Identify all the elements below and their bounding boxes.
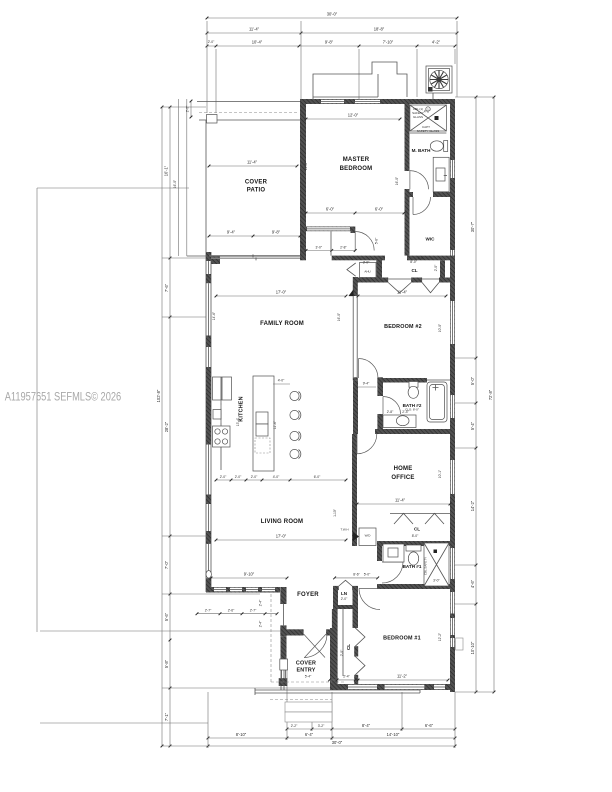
svg-text:2'-0": 2'-0": [251, 475, 258, 479]
svg-text:8'-0": 8'-0": [412, 534, 419, 538]
svg-text:A11957651 SEFMLS© 2026: A11957651 SEFMLS© 2026: [5, 390, 122, 404]
svg-text:8'-0": 8'-0": [410, 260, 417, 264]
svg-text:BEDROOM #1: BEDROOM #1: [383, 636, 421, 642]
svg-text:8'-10": 8'-10": [236, 732, 247, 737]
svg-text:7'-10": 7'-10": [383, 40, 394, 45]
svg-text:ENTRY: ENTRY: [296, 668, 315, 674]
svg-text:AHU: AHU: [364, 270, 370, 274]
svg-text:9'-8": 9'-8": [272, 230, 281, 235]
svg-text:5'-4": 5'-4": [305, 675, 312, 679]
svg-text:5'-6": 5'-6": [164, 612, 169, 621]
svg-text:4'-6": 4'-6": [470, 579, 475, 588]
svg-text:4'-0": 4'-0": [273, 475, 280, 479]
svg-text:72'-8": 72'-8": [488, 389, 493, 400]
svg-text:CL: CL: [346, 644, 351, 650]
svg-text:17'-0": 17'-0": [276, 534, 287, 539]
svg-text:7'-0": 7'-0": [164, 560, 169, 569]
svg-text:2'-0": 2'-0": [208, 40, 215, 44]
svg-text:5'-8": 5'-8": [164, 659, 169, 668]
svg-text:KITCHEN: KITCHEN: [239, 396, 245, 421]
svg-text:OFFICE: OFFICE: [391, 475, 414, 481]
svg-text:2'-7": 2'-7": [205, 609, 212, 613]
svg-text:11'-6": 11'-6": [273, 420, 277, 429]
svg-text:9'-10": 9'-10": [244, 572, 255, 577]
svg-text:SAFETY GLASS: SAFETY GLASS: [417, 129, 439, 133]
svg-text:16'-0": 16'-0": [395, 176, 399, 185]
svg-text:3'-0": 3'-0": [316, 246, 323, 250]
svg-text:LN: LN: [341, 591, 348, 596]
svg-text:7'-6": 7'-6": [164, 283, 169, 292]
svg-text:6'-0": 6'-0": [326, 207, 335, 212]
svg-text:6'-0": 6'-0": [418, 256, 425, 260]
svg-text:14'-6": 14'-6": [212, 311, 216, 320]
svg-text:8'-6": 8'-6": [353, 573, 360, 577]
svg-text:6'-0": 6'-0": [314, 475, 321, 479]
svg-text:11'-4": 11'-4": [395, 498, 406, 503]
svg-text:102'-8": 102'-8": [156, 389, 161, 402]
svg-text:10'-1": 10'-1": [438, 469, 442, 478]
svg-text:FAMILY ROOM: FAMILY ROOM: [260, 321, 304, 327]
svg-text:BATH #1: BATH #1: [403, 564, 422, 569]
svg-text:2'-0": 2'-0": [340, 649, 344, 656]
svg-text:2'-0": 2'-0": [341, 597, 348, 601]
svg-text:PATIO: PATIO: [247, 188, 266, 194]
svg-text:11'-4": 11'-4": [249, 27, 260, 32]
svg-text:BEDROOM: BEDROOM: [340, 166, 373, 172]
svg-text:FOYER: FOYER: [297, 592, 319, 598]
svg-text:6'-0": 6'-0": [375, 207, 384, 212]
svg-text:2'-0": 2'-0": [301, 240, 305, 247]
svg-text:11'-4": 11'-4": [247, 160, 258, 165]
svg-text:14'-6": 14'-6": [304, 161, 308, 170]
svg-text:9'-4": 9'-4": [363, 382, 370, 386]
svg-text:2'-6": 2'-6": [228, 609, 235, 613]
svg-text:2'-4": 2'-4": [259, 620, 263, 627]
svg-text:GLASS: GLASS: [413, 115, 423, 119]
svg-text:10'-4": 10'-4": [252, 40, 263, 45]
svg-text:12'-2": 12'-2": [438, 632, 442, 641]
svg-text:5'-4": 5'-4": [470, 421, 475, 430]
svg-text:11'-2": 11'-2": [397, 674, 408, 679]
svg-text:7'-1": 7'-1": [164, 712, 169, 721]
svg-text:18'-8": 18'-8": [374, 27, 385, 32]
svg-text:6'-4": 6'-4": [305, 732, 314, 737]
svg-text:10'-10": 10'-10": [470, 641, 475, 654]
svg-text:2'-2": 2'-2": [291, 724, 298, 728]
svg-text:W/D: W/D: [365, 534, 372, 538]
svg-text:3'-0": 3'-0": [433, 579, 440, 583]
svg-text:WIC: WIC: [426, 237, 436, 242]
svg-text:CLG: 8'-0": CLG: 8'-0": [405, 407, 419, 411]
svg-text:M. BATH: M. BATH: [412, 148, 431, 153]
svg-text:28'-2": 28'-2": [164, 421, 169, 432]
svg-text:2'-0": 2'-0": [186, 105, 190, 112]
svg-text:CL: CL: [411, 268, 417, 273]
svg-text:2'-4": 2'-4": [259, 599, 263, 606]
svg-text:16'-0": 16'-0": [337, 312, 341, 321]
svg-text:2'-0": 2'-0": [220, 475, 227, 479]
svg-text:30'-0": 30'-0": [332, 740, 343, 745]
svg-text:16'-0": 16'-0": [173, 179, 177, 188]
svg-text:4'-2": 4'-2": [432, 40, 441, 45]
svg-text:2'-0": 2'-0": [434, 264, 438, 271]
svg-text:5'-0": 5'-0": [470, 376, 475, 385]
svg-text:CBL SAFETY: CBL SAFETY: [424, 557, 428, 575]
svg-text:3'-2": 3'-2": [318, 724, 325, 728]
svg-text:9'-8": 9'-8": [325, 40, 334, 45]
svg-text:11'-4": 11'-4": [397, 290, 408, 295]
svg-text:30'-0": 30'-0": [327, 12, 338, 17]
svg-text:CL: CL: [414, 527, 420, 532]
svg-text:3'-0": 3'-0": [363, 261, 370, 265]
svg-text:MASTER: MASTER: [343, 157, 370, 163]
svg-text:LIVING ROOM: LIVING ROOM: [261, 519, 304, 525]
svg-text:12'-0": 12'-0": [348, 113, 359, 118]
svg-text:5'-8": 5'-8": [375, 237, 379, 244]
svg-text:6'-6": 6'-6": [425, 723, 434, 728]
svg-text:9'-4": 9'-4": [227, 230, 236, 235]
svg-text:14'-2": 14'-2": [470, 500, 475, 511]
svg-text:HOME: HOME: [394, 466, 413, 472]
svg-text:T.W.H: T.W.H: [341, 528, 349, 532]
svg-text:1-10": 1-10": [333, 508, 337, 517]
svg-text:8'-4": 8'-4": [362, 723, 371, 728]
svg-text:14'-10": 14'-10": [387, 732, 400, 737]
svg-text:BEDROOM #2: BEDROOM #2: [384, 324, 422, 330]
svg-text:5'-0": 5'-0": [364, 573, 371, 577]
svg-text:10'-0": 10'-0": [438, 323, 442, 332]
svg-text:2'-8": 2'-8": [340, 246, 347, 250]
svg-text:2'-0": 2'-0": [235, 475, 242, 479]
svg-text:17'-0": 17'-0": [276, 290, 287, 295]
svg-text:16'-1": 16'-1": [164, 165, 169, 176]
svg-text:2'-8": 2'-8": [387, 410, 394, 414]
svg-text:2'-4": 2'-4": [343, 675, 350, 679]
svg-text:30'-7": 30'-7": [470, 221, 475, 232]
svg-text:2'-7": 2'-7": [250, 609, 257, 613]
svg-text:4'-0": 4'-0": [278, 379, 285, 383]
svg-text:COVER: COVER: [245, 180, 268, 186]
svg-text:COVER: COVER: [296, 661, 316, 667]
